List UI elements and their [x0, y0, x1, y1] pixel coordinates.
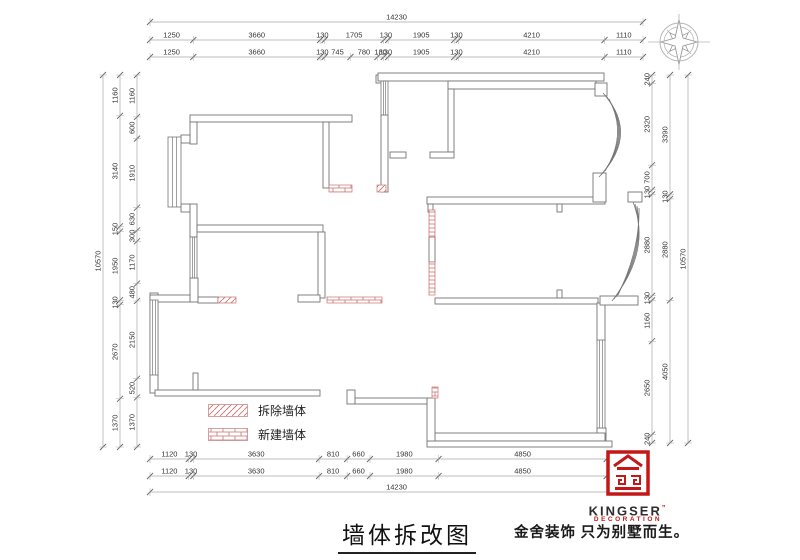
wall-segment: [448, 81, 596, 89]
dimension-value: 1250: [163, 31, 180, 40]
dimension-chain: 125036601301705130190513042101110: [147, 31, 646, 45]
dimension-chain: 11603140150195013026701370: [111, 72, 125, 450]
dimension-value: 745: [331, 48, 344, 57]
demolish-swatch-icon: [208, 404, 248, 417]
dimension-value: 3660: [248, 31, 265, 40]
wall-segment: [381, 115, 388, 192]
dimension-value: 14230: [386, 13, 407, 22]
demolish-layer: [218, 185, 386, 303]
dimension-value: 1980: [396, 467, 413, 476]
dimension-value: 3630: [248, 450, 265, 459]
dimension-value: 600: [128, 122, 137, 135]
dimension-value: 130: [380, 48, 393, 57]
wall-segment: [427, 197, 605, 204]
wall-segment: [298, 295, 320, 302]
drawing-sheet: { "title": { "text": "墙体拆改图" }, "legend"…: [0, 0, 800, 560]
wall-segment: [347, 390, 355, 404]
dimension-value: 3140: [111, 163, 120, 180]
wall-segment: [190, 115, 352, 122]
dimension-value: 1110: [616, 48, 632, 57]
demolish-wall-segment: [218, 297, 236, 303]
dimension-value: 660: [352, 450, 365, 459]
bay-window-curve: [616, 206, 638, 297]
window: [597, 340, 605, 428]
windows-layer: [150, 81, 605, 428]
wall-segment: [181, 135, 190, 143]
dimension-value: 480: [128, 286, 137, 299]
legend-label-new: 新建墙体: [258, 426, 306, 443]
dimension-value: 130: [643, 292, 652, 305]
wall-segment: [190, 278, 198, 302]
wall-segment: [430, 152, 454, 158]
dimension-value: 2320: [643, 116, 652, 133]
dimension-value: 4210: [523, 31, 540, 40]
wall-segment: [593, 173, 606, 202]
dimension-value: 300: [128, 230, 137, 243]
dimension-value: 2670: [111, 343, 120, 360]
wall-segment: [595, 83, 607, 96]
wall-segment: [378, 73, 604, 81]
new-wall-swatch-icon: [208, 428, 248, 441]
dimension-value: 2650: [643, 380, 652, 397]
dimension-value: 130: [661, 190, 670, 203]
dimension-value: 660: [352, 467, 365, 476]
wall-segment: [448, 89, 454, 152]
wall-segment: [435, 298, 598, 304]
wall-segment: [557, 290, 562, 298]
dimension-value: 1910: [128, 165, 137, 182]
wall-segment: [193, 373, 198, 390]
dimension-value: 130: [111, 296, 120, 309]
dimension-value: 130: [450, 48, 463, 57]
dimension-value: 150: [111, 223, 120, 236]
dimension-value: 1120: [161, 467, 177, 476]
compass-rose-icon: [648, 14, 710, 70]
wall-segment: [198, 297, 218, 303]
dimension-value: 3630: [248, 467, 265, 476]
window: [381, 81, 388, 115]
dimension-value: 810: [327, 450, 340, 459]
wall-segment: [190, 122, 197, 144]
dimension-value: 1980: [396, 450, 413, 459]
dimension-chain: 339013028804050: [661, 72, 675, 446]
wall-segment: [318, 232, 325, 298]
dimension-value: 3660: [248, 48, 265, 57]
new-wall-segment: [432, 387, 438, 398]
dimension-value: 1160: [643, 313, 652, 329]
window: [150, 300, 158, 375]
wall-segment: [429, 237, 435, 262]
brand-name: KINGSER”: [563, 503, 693, 516]
dimension-value: 1250: [163, 48, 180, 57]
company-logo: KINGSER” DECORATION: [563, 450, 693, 523]
dimension-value: 1170: [128, 254, 137, 270]
dimension-value: 130: [316, 31, 329, 40]
window: [190, 237, 197, 278]
dimension-value: 130: [185, 467, 198, 476]
bay-window-curve: [603, 97, 619, 173]
dimension-value: 630: [128, 213, 137, 226]
dimension-value: 1160: [111, 87, 120, 103]
wall-segment: [427, 441, 612, 447]
dimension-value: 1370: [111, 415, 120, 432]
dimension-chain: 10570: [679, 72, 693, 446]
dimension-value: 810: [327, 467, 340, 476]
dimension-value: 520: [128, 382, 137, 395]
brand-slogan: 金舍装饰 只为别墅而生。: [514, 521, 689, 542]
dimension-value: 4210: [523, 48, 540, 57]
wall-segment: [155, 390, 320, 396]
wall-segment: [597, 303, 605, 341]
dimension-value: 240: [643, 73, 652, 86]
dimension-chain: 2402320700130288013011602650240: [643, 72, 657, 446]
wall-segment: [390, 152, 406, 158]
brand-reg-mark: ”: [662, 505, 668, 512]
dimension-value: 1905: [413, 48, 430, 57]
dimension-value: 130: [643, 186, 652, 199]
dimension-value: 130: [316, 48, 329, 57]
dimension-value: 1370: [128, 414, 137, 431]
demolish-wall-segment: [377, 185, 386, 192]
dimension-chain: 10570: [94, 72, 108, 450]
dimension-value: 14230: [386, 483, 407, 492]
dimension-value: 2150: [128, 331, 137, 348]
dimension-value: 780: [358, 48, 371, 57]
wall-segment: [628, 192, 642, 202]
new-wall-segment: [429, 262, 435, 295]
wall-segment: [355, 398, 427, 404]
dimension-value: 1160: [128, 88, 137, 104]
kingser-logo-icon: [606, 450, 650, 498]
dimension-value: 1905: [413, 31, 430, 40]
dimension-value: 10570: [94, 251, 103, 272]
window: [168, 137, 181, 207]
dimension-value: 4050: [661, 363, 670, 380]
dimension-value: 130: [380, 31, 393, 40]
wall-segment: [197, 225, 323, 232]
dimension-value: 4850: [514, 450, 531, 459]
drawing-title: 墙体拆改图: [338, 516, 476, 554]
walls-layer: [150, 73, 642, 447]
new-wall-segment: [429, 210, 435, 237]
dimension-value: 130: [185, 450, 198, 459]
legend-item-demolish: 拆除墙体: [208, 402, 306, 418]
dimension-value: 2880: [661, 241, 670, 258]
wall-segment: [190, 204, 197, 237]
dimension-value: 10570: [679, 249, 688, 270]
dimension-chain: 11606001910630300117048021505201370: [128, 72, 142, 450]
legend: 拆除墙体 新建墙体: [208, 402, 306, 450]
dimension-value: 2880: [643, 237, 652, 254]
dimension-value: 1110: [616, 31, 632, 40]
wall-segment: [557, 204, 562, 212]
dimension-value: 1120: [161, 450, 177, 459]
new-walls-layer: [327, 185, 438, 398]
wall-segment: [181, 204, 190, 212]
wall-segment: [435, 433, 605, 441]
dimension-chain: 14230: [147, 13, 646, 27]
dimension-value: 1950: [111, 258, 120, 275]
wall-segment: [427, 398, 435, 441]
dimension-value: 240: [643, 433, 652, 446]
new-wall-segment: [329, 185, 352, 192]
dimension-chain: 12503660130745780180130190513042101110: [147, 48, 646, 62]
dimension-value: 130: [450, 31, 463, 40]
legend-item-new: 新建墙体: [208, 426, 306, 442]
new-wall-segment: [327, 297, 382, 303]
dimension-value: 4850: [514, 467, 531, 476]
dimension-value: 700: [643, 171, 652, 184]
bay-window-curve: [601, 95, 620, 175]
dimension-value: 1705: [346, 31, 363, 40]
wall-segment: [600, 296, 638, 305]
wall-segment: [323, 122, 329, 188]
dimension-value: 3390: [661, 126, 670, 143]
legend-label-demolish: 拆除墙体: [258, 402, 306, 419]
